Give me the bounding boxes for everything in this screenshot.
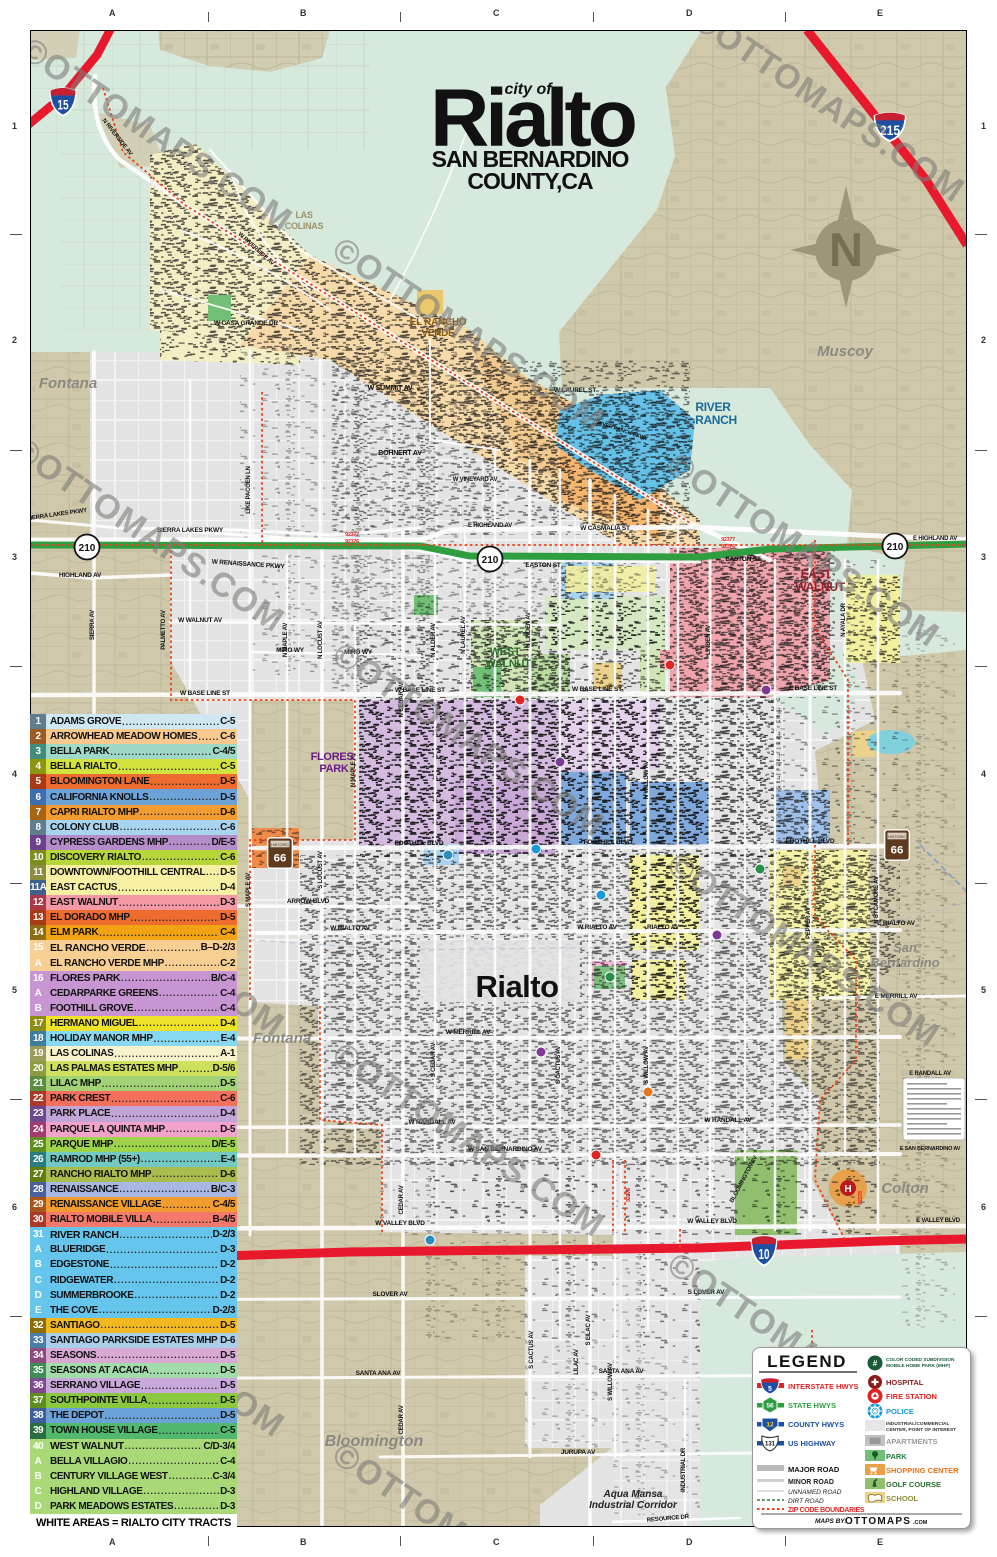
svg-text:GOLF COURSE: GOLF COURSE (886, 1480, 941, 1489)
svg-text:APARTMENTS: APARTMENTS (886, 1437, 938, 1446)
svg-text:STATE HWYS: STATE HWYS (788, 1401, 836, 1410)
svg-text:US HIGHWAY: US HIGHWAY (788, 1439, 836, 1448)
svg-text:DIRT ROAD: DIRT ROAD (788, 1498, 824, 1505)
svg-text:OTTOMAPS: OTTOMAPS (845, 1516, 911, 1527)
svg-text:UNNAMED ROAD: UNNAMED ROAD (788, 1489, 842, 1496)
svg-text:#: # (873, 1359, 878, 1368)
svg-text:ZIP CODE BOUNDARIES: ZIP CODE BOUNDARIES (788, 1507, 865, 1514)
svg-text:MOBILE HOME PARK (MHP): MOBILE HOME PARK (MHP) (886, 1363, 951, 1369)
svg-text:131: 131 (765, 1442, 776, 1448)
svg-text:CENTER, POINT OF INTEREST: CENTER, POINT OF INTEREST (886, 1427, 956, 1433)
svg-text:MAJOR ROAD: MAJOR ROAD (788, 1465, 840, 1474)
svg-text:.COM: .COM (913, 1520, 928, 1526)
svg-text:PARK: PARK (886, 1452, 907, 1461)
svg-text:INDUSTRIAL/COMMERCIAL: INDUSTRIAL/COMMERCIAL (886, 1421, 949, 1427)
svg-text:INTERSTATE HWYS: INTERSTATE HWYS (788, 1382, 859, 1391)
svg-text:56: 56 (766, 1403, 774, 1410)
svg-text:COLOR CODED SUBDIVISION: COLOR CODED SUBDIVISION (886, 1357, 955, 1363)
svg-text:MINOR ROAD: MINOR ROAD (788, 1479, 834, 1486)
svg-text:HOSPITAL: HOSPITAL (886, 1378, 924, 1387)
svg-text:5: 5 (768, 1386, 772, 1393)
svg-text:FIRE STATION: FIRE STATION (886, 1392, 937, 1401)
svg-text:COUNTY HWYS: COUNTY HWYS (788, 1420, 844, 1429)
svg-text:SCHOOL: SCHOOL (886, 1494, 919, 1503)
svg-text:LEGEND: LEGEND (767, 1352, 847, 1371)
svg-text:POLICE: POLICE (886, 1407, 914, 1416)
svg-text:SHOPPING CENTER: SHOPPING CENTER (886, 1466, 959, 1475)
svg-text:MAPS BY:: MAPS BY: (815, 1518, 846, 1525)
svg-text:12: 12 (766, 1422, 774, 1429)
